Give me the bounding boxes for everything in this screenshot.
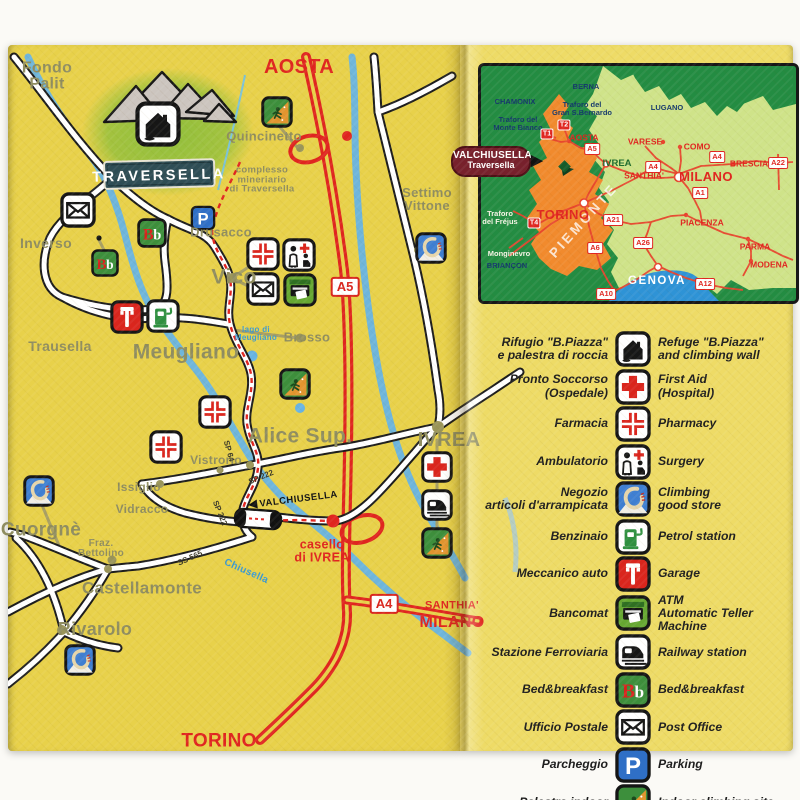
legend-label-it-post: Ufficio Postale xyxy=(477,721,608,734)
legend-label-en-post: Post Office xyxy=(658,721,790,734)
inset-badge-a1: A1 xyxy=(692,187,708,199)
indoor-icon xyxy=(615,784,651,800)
surgery-icon xyxy=(615,444,651,480)
valchiusella-sign: VALCHIUSELLA Traversella xyxy=(451,146,531,177)
legend-row-atm: BancomatATM Automatic Teller Machine xyxy=(477,594,790,633)
legend-row-parking: ParcheggioParking xyxy=(477,747,790,783)
legend-label-en-surgery: Surgery xyxy=(658,455,790,468)
legend-row-petrol: BenzinaioPetrol station xyxy=(477,519,790,555)
inset-label-torino: TORINO xyxy=(537,208,590,222)
inset-badge-a4: A4 xyxy=(645,161,661,173)
inset-badge-a6: A6 xyxy=(587,242,603,254)
legend-label-it-parking: Parcheggio xyxy=(477,758,608,771)
inset-tunnel-badge-t1: T1 xyxy=(540,128,553,139)
inset-label-milano: MILANO xyxy=(679,170,733,184)
inset-label-aosta: AOSTA xyxy=(569,133,598,142)
inset-tunnel-badge-t4: T4 xyxy=(527,217,540,228)
bnb-icon xyxy=(615,672,651,708)
pharmacy-icon xyxy=(615,406,651,442)
legend-label-it-carabiner: Negozio articoli d'arrampicata xyxy=(477,486,608,512)
legend-label-en-railway: Railway station xyxy=(658,646,790,659)
legend-label-it-atm: Bancomat xyxy=(477,607,608,620)
inset-label-ivrea: IVREA xyxy=(602,159,631,169)
legend-label-en-refuge: Refuge "B.Piazza" and climbing wall xyxy=(658,336,790,362)
inset-label-berna: BERNA xyxy=(573,83,600,91)
firstaid-icon xyxy=(615,369,651,405)
inset-label-genova: GENOVA xyxy=(628,275,686,287)
map-legend: Rifugio "B.Piazza" e palestra di rocciaR… xyxy=(477,331,790,800)
inset-badge-a10: A10 xyxy=(596,288,616,300)
legend-label-it-garage: Meccanico auto xyxy=(477,567,608,580)
legend-label-it-surgery: Ambulatorio xyxy=(477,455,608,468)
inset-badge-a4: A4 xyxy=(709,151,725,163)
legend-label-it-refuge: Rifugio "B.Piazza" e palestra di roccia xyxy=(477,336,608,362)
legend-row-post: Ufficio PostalePost Office xyxy=(477,709,790,745)
legend-label-en-bnb: Bed&breakfast xyxy=(658,683,790,696)
legend-label-it-pharmacy: Farmacia xyxy=(477,417,608,430)
legend-row-bnb: Bed&breakfastBed&breakfast xyxy=(477,672,790,708)
legend-label-it-firstaid: Pronto Soccorso (Ospedale) xyxy=(477,373,608,399)
legend-label-en-pharmacy: Pharmacy xyxy=(658,417,790,430)
inset-label-piacenza: PIACENZA xyxy=(680,218,723,227)
legend-row-refuge: Rifugio "B.Piazza" e palestra di rocciaR… xyxy=(477,331,790,367)
railway-icon xyxy=(615,634,651,670)
legend-label-it-railway: Stazione Ferroviaria xyxy=(477,646,608,659)
inset-label-modena: MODENA xyxy=(750,260,788,269)
inset-badge-a5: A5 xyxy=(584,143,600,155)
left-arrow-icon: ◀ xyxy=(248,498,258,511)
inset-badge-a26: A26 xyxy=(633,237,653,249)
garage-icon xyxy=(615,556,651,592)
inset-label-traforo-del-fr-jus: Traforo del Fréjus xyxy=(482,210,517,226)
legend-row-railway: Stazione FerroviariaRailway station xyxy=(477,634,790,670)
inset-badge-a21: A21 xyxy=(603,214,623,226)
legend-row-carabiner: Negozio articoli d'arrampicataClimbing g… xyxy=(477,481,790,517)
petrol-icon xyxy=(615,519,651,555)
inset-badge-a22: A22 xyxy=(768,157,788,169)
legend-row-surgery: AmbulatorioSurgery xyxy=(477,444,790,480)
inset-label-monginevro: Monginevro xyxy=(488,250,531,258)
valchiusella-sign-subtitle: Traversella xyxy=(453,161,529,171)
inset-label-traforo-del-gran-s-bernardo: Traforo del Gran S.Bernardo xyxy=(552,101,612,117)
legend-label-it-bnb: Bed&breakfast xyxy=(477,683,608,696)
legend-label-it-indoor: Palestra indoor xyxy=(477,796,608,800)
inset-tunnel-badge-t2: T2 xyxy=(557,119,570,130)
legend-label-en-indoor: Indoor climbing site xyxy=(658,796,790,800)
inset-label-como: COMO xyxy=(684,142,710,151)
post-icon xyxy=(615,709,651,745)
inset-label-chamonix: CHAMONIX xyxy=(495,98,536,106)
inset-label-varese: VARESE xyxy=(628,137,662,146)
legend-row-indoor: Palestra indoorIndoor climbing site xyxy=(477,784,790,800)
refuge-icon xyxy=(615,331,651,367)
inset-region-map: BERNACHAMONIXTraforo del Monte BiancoTra… xyxy=(478,63,799,304)
inset-label-traforo-del-monte-bianco: Traforo del Monte Bianco xyxy=(493,116,542,132)
inset-labels-layer: BERNACHAMONIXTraforo del Monte BiancoTra… xyxy=(481,66,796,301)
legend-label-en-garage: Garage xyxy=(658,567,790,580)
legend-row-firstaid: Pronto Soccorso (Ospedale)First Aid (Hos… xyxy=(477,369,790,405)
legend-row-garage: Meccanico autoGarage xyxy=(477,556,790,592)
sign-arrow-icon: ▶ xyxy=(531,151,543,169)
inset-label-brescia: BRESCIA xyxy=(730,159,768,168)
legend-label-en-petrol: Petrol station xyxy=(658,530,790,543)
legend-label-en-firstaid: First Aid (Hospital) xyxy=(658,373,790,399)
parking-icon xyxy=(615,747,651,783)
scanned-map-brochure: Fondo PalitInversoTrausellaDrusaccoVicoM… xyxy=(0,0,800,800)
inset-badge-a12: A12 xyxy=(695,278,715,290)
legend-label-en-parking: Parking xyxy=(658,758,790,771)
inset-label-lugano: LUGANO xyxy=(651,104,684,112)
inset-label-parma: PARMA xyxy=(740,242,771,251)
legend-label-it-petrol: Benzinaio xyxy=(477,530,608,543)
carabiner-icon xyxy=(615,481,651,517)
legend-row-pharmacy: FarmaciaPharmacy xyxy=(477,406,790,442)
inset-label-brian-on: BRIANÇON xyxy=(487,262,527,270)
atm-icon xyxy=(615,595,651,631)
legend-label-en-carabiner: Climbing good store xyxy=(658,486,790,512)
legend-label-en-atm: ATM Automatic Teller Machine xyxy=(658,594,790,633)
